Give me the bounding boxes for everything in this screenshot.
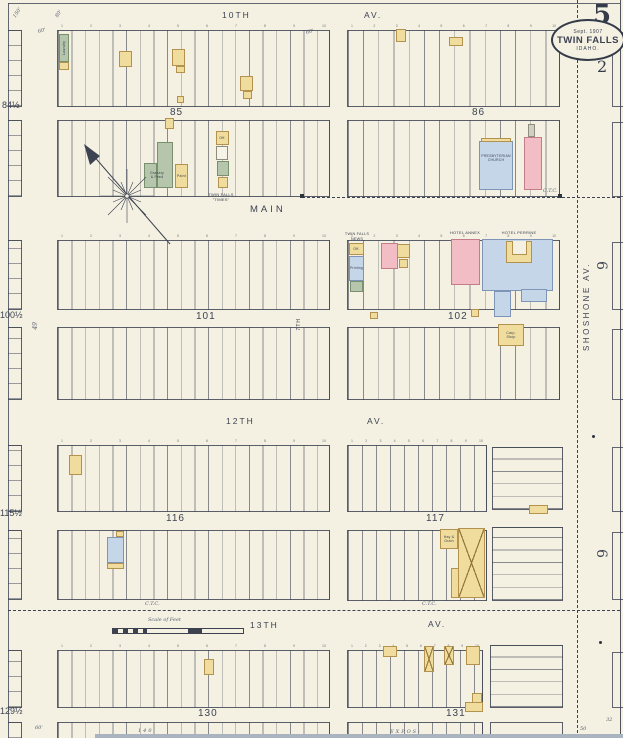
dimension-60: 60' bbox=[35, 725, 43, 731]
block-number-101: 101 bbox=[196, 311, 216, 322]
hydrant-marker bbox=[599, 641, 602, 644]
street-label-main: MAIN bbox=[250, 204, 286, 215]
building bbox=[107, 563, 124, 569]
scan-edge bbox=[95, 734, 623, 738]
scale-bar-label: Scale of Feet bbox=[148, 617, 181, 623]
block-number-86: 86 bbox=[472, 107, 485, 118]
building bbox=[370, 312, 378, 319]
compass-rose-icon bbox=[70, 138, 180, 250]
lot-numbers-row: 12345678910 bbox=[347, 24, 560, 28]
news-label: TWIN FALLS NEWS bbox=[340, 232, 374, 242]
building bbox=[465, 702, 483, 712]
building bbox=[350, 281, 363, 292]
lot-numbers-row: 12345678910 bbox=[347, 439, 487, 443]
building bbox=[529, 505, 548, 514]
block-101-upper-lots bbox=[57, 240, 330, 310]
street-label-13th: 13TH bbox=[250, 620, 279, 630]
lot-numbers-row: 12345678910 bbox=[57, 439, 330, 443]
block-116-lower-lots bbox=[57, 530, 330, 600]
halfblock-84-upper bbox=[8, 30, 22, 107]
building bbox=[218, 177, 228, 188]
east-block-r2u bbox=[612, 242, 623, 310]
building bbox=[243, 91, 252, 99]
church-porch bbox=[481, 138, 511, 142]
halfblock-115-lower bbox=[8, 530, 22, 600]
halfblock-129-upper bbox=[8, 650, 22, 708]
block-number-84half: 84½ bbox=[2, 100, 20, 110]
block-131-east-strip bbox=[490, 645, 563, 708]
building bbox=[204, 659, 214, 675]
building bbox=[383, 646, 397, 657]
hotel-perrine-label: HOTEL PERRINE bbox=[486, 229, 552, 236]
building bbox=[381, 243, 398, 269]
street-label-shoshone: SHOSHONE AV. bbox=[582, 233, 591, 351]
east-block-number-6a: 6 bbox=[593, 261, 609, 271]
hotel-perrine-rear-wing bbox=[521, 289, 547, 302]
lot-numbers-row: 12345678910 bbox=[347, 644, 483, 648]
halfblock-100-lower bbox=[8, 327, 22, 400]
street-label-13th-av: AV. bbox=[428, 619, 446, 629]
times-label: TWIN FALLS "TIMES" bbox=[201, 191, 241, 203]
building bbox=[449, 37, 463, 46]
carpenter-shop-label: Carp. Shop bbox=[498, 327, 524, 343]
block-130-upper-lots bbox=[57, 650, 330, 708]
block-number-129half: 129½ bbox=[0, 706, 23, 716]
hotel-perrine-courtyard bbox=[512, 241, 527, 255]
times-office-label: Off. bbox=[216, 131, 229, 145]
lot-numbers-row: 12345678910 bbox=[57, 644, 330, 648]
block-number-100half: 100½ bbox=[0, 310, 23, 320]
block-101-lower-lots bbox=[57, 327, 330, 400]
printing-label: Printing bbox=[349, 258, 364, 279]
times-printing-building bbox=[217, 161, 229, 176]
halfblock-115-upper bbox=[8, 445, 22, 512]
news-office-label: Off. bbox=[349, 243, 364, 255]
laundry-label: Laundry bbox=[58, 35, 70, 61]
livery-stable-building bbox=[458, 528, 485, 598]
shoshone-dashed-line bbox=[577, 0, 578, 738]
building bbox=[177, 96, 184, 103]
building bbox=[69, 455, 82, 475]
street-label-12th: 12TH bbox=[226, 416, 255, 426]
title-stamp: Sept. 1907 TWIN FALLS IDAHO. bbox=[551, 19, 623, 61]
east-block-r3l bbox=[612, 532, 623, 600]
stable-building bbox=[444, 646, 454, 665]
block-117-east-strip-upper bbox=[492, 447, 563, 510]
block-131-upper-lots bbox=[347, 650, 483, 708]
east-block-r1l bbox=[612, 122, 623, 197]
east-block-r2l bbox=[612, 329, 623, 400]
chapel-building bbox=[107, 537, 124, 563]
building bbox=[119, 51, 132, 67]
block-117-east-strip-lower bbox=[492, 527, 563, 601]
building bbox=[172, 49, 185, 66]
block-number-115half: 115½ bbox=[0, 508, 22, 518]
hotel-annex-building bbox=[451, 239, 480, 285]
block-number-85: 85 bbox=[170, 107, 183, 118]
building bbox=[451, 568, 459, 598]
hotel-perrine-rear-wing bbox=[494, 291, 511, 317]
tower bbox=[528, 124, 535, 137]
building bbox=[471, 309, 479, 317]
east-block-r3u bbox=[612, 447, 623, 512]
block-85-upper-lots bbox=[57, 30, 330, 107]
ctc-label: C.T.C. bbox=[543, 188, 558, 194]
dimension-150: 150' bbox=[12, 7, 23, 19]
scale-bar bbox=[112, 628, 244, 634]
block-number-102: 102 bbox=[448, 311, 468, 322]
building bbox=[466, 646, 480, 665]
building bbox=[216, 146, 228, 160]
ctc-dashed-line-lower bbox=[8, 610, 620, 611]
block-number-130: 130 bbox=[198, 708, 218, 719]
stable-building bbox=[424, 646, 434, 672]
street-label-7th: 7TH bbox=[296, 318, 302, 330]
halfblock-129-partial bbox=[8, 722, 22, 738]
block-116-upper-lots bbox=[57, 445, 330, 512]
building bbox=[165, 118, 174, 129]
ctc-label: C.T.C. bbox=[422, 601, 437, 607]
east-block-number-6b: 6 bbox=[593, 549, 609, 559]
dimension-80: 80' bbox=[54, 9, 63, 19]
halfblock-84-lower bbox=[8, 120, 22, 197]
sanborn-map-page: 12345678910 12345678910 12345678910 1234… bbox=[0, 0, 623, 738]
sheet-secondary-number: 2 bbox=[597, 57, 607, 76]
street-label-10th-av: AV. bbox=[364, 10, 382, 20]
building bbox=[399, 259, 408, 268]
street-label-12th-av: AV. bbox=[367, 416, 385, 426]
block-number-117: 117 bbox=[426, 513, 445, 524]
church-label: PRESBYTERIAN CHURCH bbox=[479, 146, 513, 170]
building bbox=[397, 244, 410, 258]
block-number-116: 116 bbox=[166, 513, 185, 524]
building bbox=[396, 29, 406, 42]
building bbox=[176, 66, 185, 73]
hydrant-marker bbox=[592, 435, 595, 438]
stamp-city: TWIN FALLS bbox=[557, 35, 619, 46]
building bbox=[240, 76, 253, 91]
building bbox=[472, 693, 482, 703]
page-border-top bbox=[8, 3, 620, 4]
building bbox=[524, 137, 542, 190]
block-117-upper-lots bbox=[347, 445, 487, 512]
dimension-49: 49 bbox=[32, 322, 39, 330]
block-number-131: 131 bbox=[446, 708, 466, 719]
hydrant-marker bbox=[558, 194, 562, 198]
block-102-lower-lots bbox=[347, 327, 560, 400]
scale-bar-midtick bbox=[188, 629, 202, 633]
street-label-10th: 10TH bbox=[222, 10, 251, 20]
dimension-60: 60' bbox=[37, 27, 46, 35]
ctc-dashed-line-upper bbox=[302, 197, 620, 198]
dimension-50: 50 bbox=[580, 726, 586, 732]
hydrant-marker bbox=[300, 194, 304, 198]
dimension-32: 32 bbox=[606, 717, 612, 723]
halfblock-100-upper bbox=[8, 240, 22, 310]
stamp-state: IDAHO. bbox=[576, 46, 599, 52]
lot-numbers-row: 12345678910 bbox=[57, 24, 330, 28]
east-block-r4 bbox=[612, 652, 623, 708]
building bbox=[59, 62, 69, 70]
hay-grain-label: Hay & Grain bbox=[440, 531, 458, 547]
hotel-annex-label: HOTEL ANNEX bbox=[443, 229, 487, 236]
ctc-label: C.T.C. bbox=[145, 601, 160, 607]
